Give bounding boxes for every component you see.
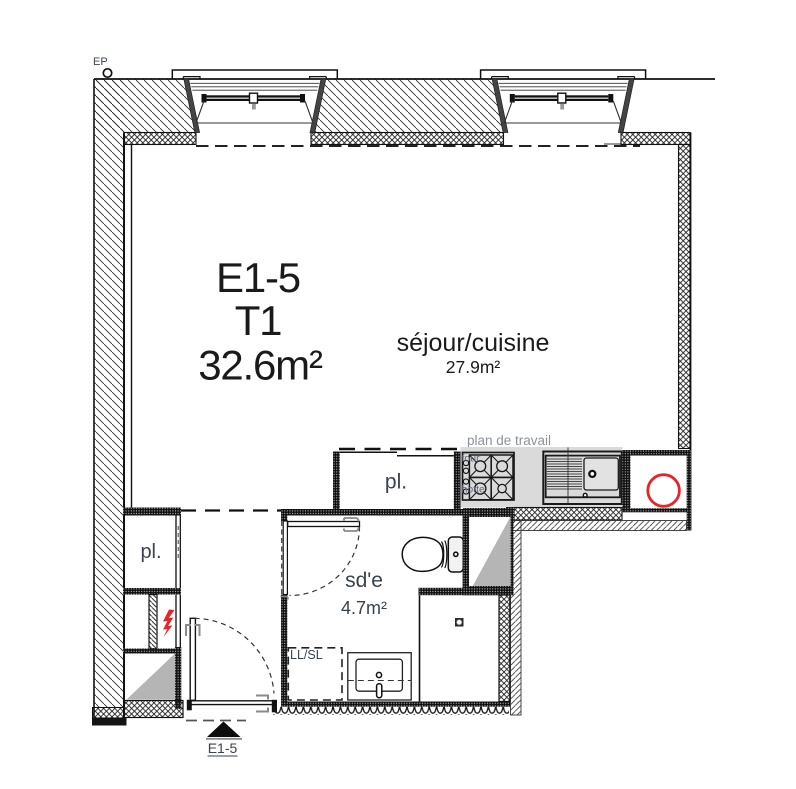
svg-text:27.9m²: 27.9m² bbox=[446, 357, 501, 377]
svg-text:séjour/cuisine: séjour/cuisine bbox=[397, 329, 550, 357]
svg-text:pl.: pl. bbox=[140, 541, 161, 563]
svg-text:four: four bbox=[462, 453, 481, 465]
svg-text:4.7m²: 4.7m² bbox=[341, 598, 387, 618]
svg-text:E1-5: E1-5 bbox=[216, 254, 300, 301]
svg-text:E1-5: E1-5 bbox=[208, 740, 238, 756]
svg-text:EP: EP bbox=[93, 56, 108, 68]
svg-text:hotte: hotte bbox=[462, 484, 486, 496]
svg-text:LL/SL: LL/SL bbox=[290, 648, 323, 662]
svg-text:plan de travail: plan de travail bbox=[467, 433, 551, 448]
svg-text:32.6m²: 32.6m² bbox=[198, 342, 323, 389]
svg-text:pl.: pl. bbox=[385, 471, 407, 494]
svg-text:sd'e: sd'e bbox=[345, 569, 383, 592]
svg-text:T1: T1 bbox=[235, 297, 282, 344]
